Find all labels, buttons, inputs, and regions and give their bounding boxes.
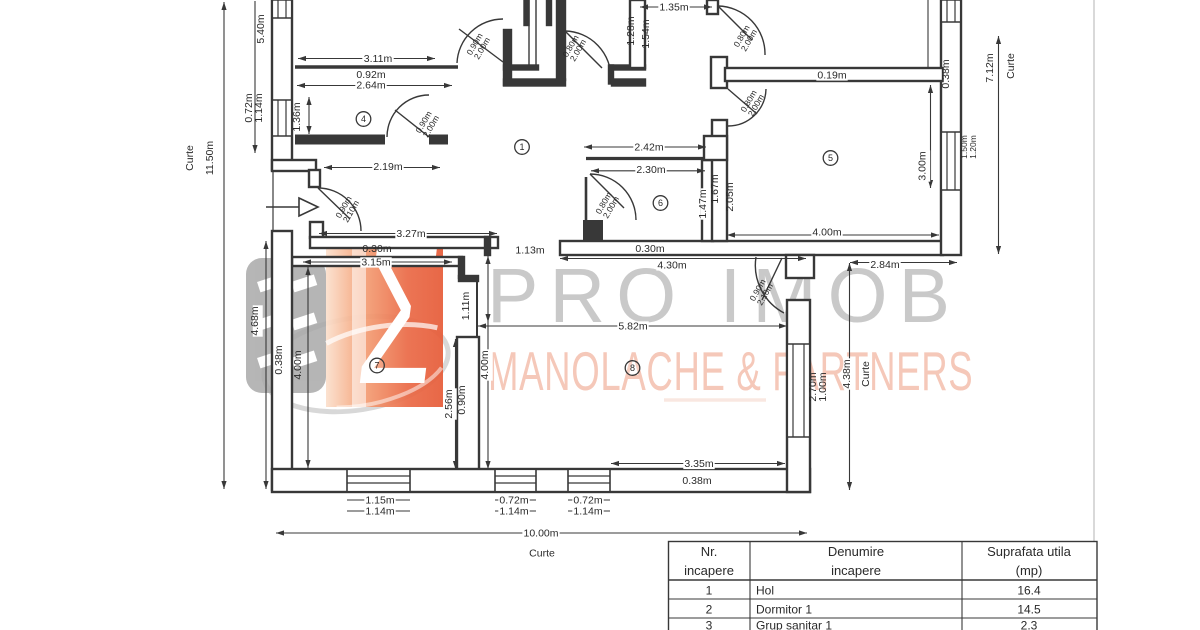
svg-text:4.30m: 4.30m [657,260,686,272]
svg-text:Hol: Hol [756,584,774,598]
svg-text:0.30m: 0.30m [635,243,664,255]
svg-text:1: 1 [706,584,713,598]
svg-text:0.38m: 0.38m [273,345,285,374]
svg-text:Denumire: Denumire [828,544,884,559]
svg-text:5.40m: 5.40m [255,14,267,43]
svg-text:1.14m: 1.14m [365,506,394,518]
svg-text:Dormitor 1: Dormitor 1 [756,603,812,617]
svg-text:1.54m: 1.54m [640,19,652,48]
svg-text:1.11m: 1.11m [460,292,472,321]
svg-text:1.14m: 1.14m [253,93,265,122]
svg-text:4.00m: 4.00m [292,350,304,379]
svg-text:10.00m: 10.00m [523,528,558,540]
svg-text:1.14m: 1.14m [573,506,602,518]
svg-text:1: 1 [519,142,524,152]
svg-text:14.5: 14.5 [1017,603,1041,617]
svg-text:MANOLACHE & PARTNERS: MANOLACHE & PARTNERS [488,341,973,402]
svg-text:Curte: Curte [860,361,872,387]
svg-text:0.38m: 0.38m [940,59,952,88]
svg-text:Grup sanitar 1: Grup sanitar 1 [756,619,832,630]
svg-text:0.90m: 0.90m [456,385,468,414]
svg-text:11.50m: 11.50m [204,141,216,175]
svg-text:1.67m: 1.67m [709,174,721,203]
svg-text:8: 8 [630,363,635,373]
svg-text:2: 2 [706,603,713,617]
svg-text:3.15m: 3.15m [361,257,390,269]
svg-text:1.35m: 1.35m [659,2,688,14]
svg-text:3.00m: 3.00m [917,151,929,180]
svg-text:1.28m: 1.28m [625,16,637,45]
svg-text:0.38m: 0.38m [682,475,711,487]
svg-text:2.05m: 2.05m [724,182,736,211]
svg-text:(mp): (mp) [1016,563,1043,578]
svg-text:2.84m: 2.84m [870,259,899,271]
svg-text:incapere: incapere [831,563,881,578]
svg-text:1.00m: 1.00m [817,372,829,401]
svg-text:0.30m: 0.30m [362,243,391,255]
svg-text:2.19m: 2.19m [373,161,402,173]
svg-text:2.3: 2.3 [1021,619,1038,630]
svg-text:3.35m: 3.35m [684,458,713,470]
svg-text:1.14m: 1.14m [499,506,528,518]
svg-text:5.82m: 5.82m [618,321,647,333]
svg-text:4.68m: 4.68m [249,306,261,335]
svg-text:Curte: Curte [184,145,196,171]
svg-text:5: 5 [828,153,833,163]
svg-text:7.12m: 7.12m [984,53,996,82]
svg-text:3.27m: 3.27m [396,228,425,240]
svg-text:Curte: Curte [529,548,555,560]
svg-text:4: 4 [361,114,366,124]
svg-text:4.38m: 4.38m [841,359,853,388]
svg-text:4.00m: 4.00m [479,350,491,379]
svg-text:1.13m: 1.13m [515,245,544,257]
svg-text:3.11m: 3.11m [364,53,393,65]
svg-text:2.30m: 2.30m [636,164,665,176]
svg-text:2.64m: 2.64m [356,80,385,92]
svg-text:1.47m: 1.47m [697,189,709,218]
svg-text:6: 6 [658,198,663,208]
svg-text:7: 7 [374,361,379,371]
svg-text:3: 3 [706,619,713,630]
svg-text:1.36m: 1.36m [291,102,303,131]
svg-text:0.19m: 0.19m [817,70,846,82]
svg-text:4.00m: 4.00m [812,227,841,239]
svg-text:2.56m: 2.56m [443,389,455,418]
svg-text:Nr.: Nr. [701,544,718,559]
svg-text:Curte: Curte [1005,53,1017,79]
svg-text:1.20m: 1.20m [968,135,978,159]
svg-text:Suprafata utila: Suprafata utila [987,544,1072,559]
svg-text:incapere: incapere [684,563,734,578]
svg-text:16.4: 16.4 [1017,584,1041,598]
svg-text:2.42m: 2.42m [634,142,663,154]
